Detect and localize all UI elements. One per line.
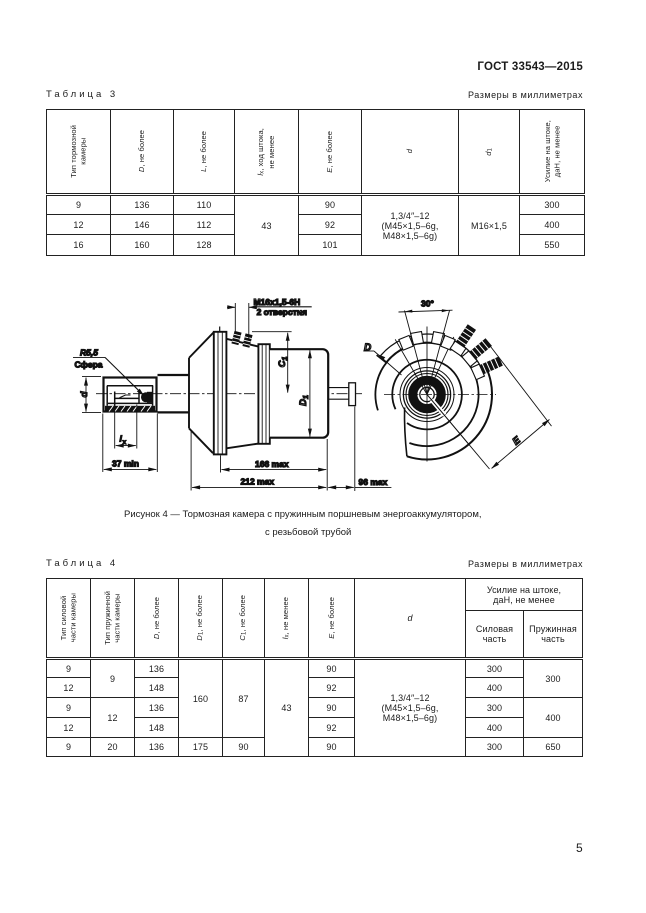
svg-text:30°: 30°: [421, 299, 434, 309]
svg-text:М16х1,5-6Н: М16х1,5-6Н: [254, 297, 301, 307]
svg-text:37 min: 37 min: [112, 458, 139, 468]
svg-text:166 max: 166 max: [255, 459, 289, 469]
svg-text:R5,5: R5,5: [80, 348, 98, 358]
svg-text:Сфера: Сфера: [75, 360, 103, 370]
svg-text:х: х: [123, 439, 127, 446]
svg-text:D: D: [364, 343, 371, 354]
svg-text:96 max: 96 max: [359, 477, 388, 487]
svg-text:E: E: [511, 435, 523, 448]
svg-text:2 отверстия: 2 отверстия: [257, 307, 307, 317]
svg-text:212 max: 212 max: [241, 477, 275, 487]
svg-text:d: d: [79, 391, 90, 397]
